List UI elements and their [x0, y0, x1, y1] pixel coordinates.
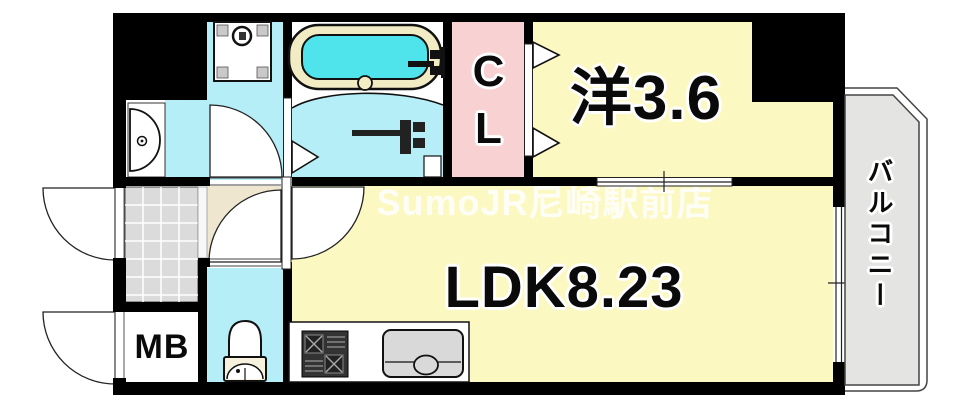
- wall-top: [113, 13, 845, 22]
- western-room-label: 洋3.6: [570, 68, 722, 130]
- toilet-icon: [224, 321, 266, 381]
- ldk-label: LDK8.23: [444, 259, 683, 317]
- wall-mid-center: [292, 177, 533, 186]
- agency-watermark: SumoJR尼崎駅前店: [376, 182, 713, 223]
- wall-entrance-mb: [113, 302, 207, 312]
- bathroom-step: [424, 156, 441, 177]
- wall-left-upper: [113, 22, 126, 188]
- closet-label: CL: [466, 47, 510, 161]
- wall-block-top-right: [752, 13, 845, 102]
- meter-box-doorway: [115, 312, 124, 378]
- wall-entrance-vertical: [198, 258, 207, 395]
- wall-right-lower: [833, 362, 845, 395]
- entrance-doorway: [115, 188, 124, 258]
- bathtub-icon: [289, 25, 445, 90]
- wall-mid-right1: [533, 177, 597, 186]
- wall-right-upper: [833, 102, 845, 207]
- entrance-door-swing: [43, 188, 115, 260]
- wall-bathroom-closet: [443, 13, 452, 186]
- floorplan-canvas: SumoJR尼崎駅前店: [0, 0, 964, 406]
- wall-mid-left: [113, 177, 210, 186]
- meter-box-door-swing: [43, 312, 115, 384]
- wall-bottom: [113, 382, 845, 395]
- wall-block-top-left: [113, 13, 207, 100]
- balcony-label: バルコニー: [866, 158, 892, 313]
- wall-closet-right-upper: [524, 13, 533, 44]
- washing-machine-pan-icon: [214, 22, 271, 81]
- hall-door-leaf: [282, 177, 291, 269]
- wall-closet-right-lower: [524, 156, 533, 186]
- closet-door: [525, 44, 533, 156]
- wall-mid-right2: [732, 177, 845, 186]
- entrance-tile-floor: [125, 187, 198, 302]
- gas-stove-icon: [302, 331, 348, 377]
- kitchen-counter: [289, 322, 469, 382]
- meter-box-label: MB: [135, 330, 190, 364]
- kitchen-sink-icon: [383, 330, 463, 377]
- bathroom-door: [284, 98, 292, 177]
- entrance-step: [198, 187, 207, 258]
